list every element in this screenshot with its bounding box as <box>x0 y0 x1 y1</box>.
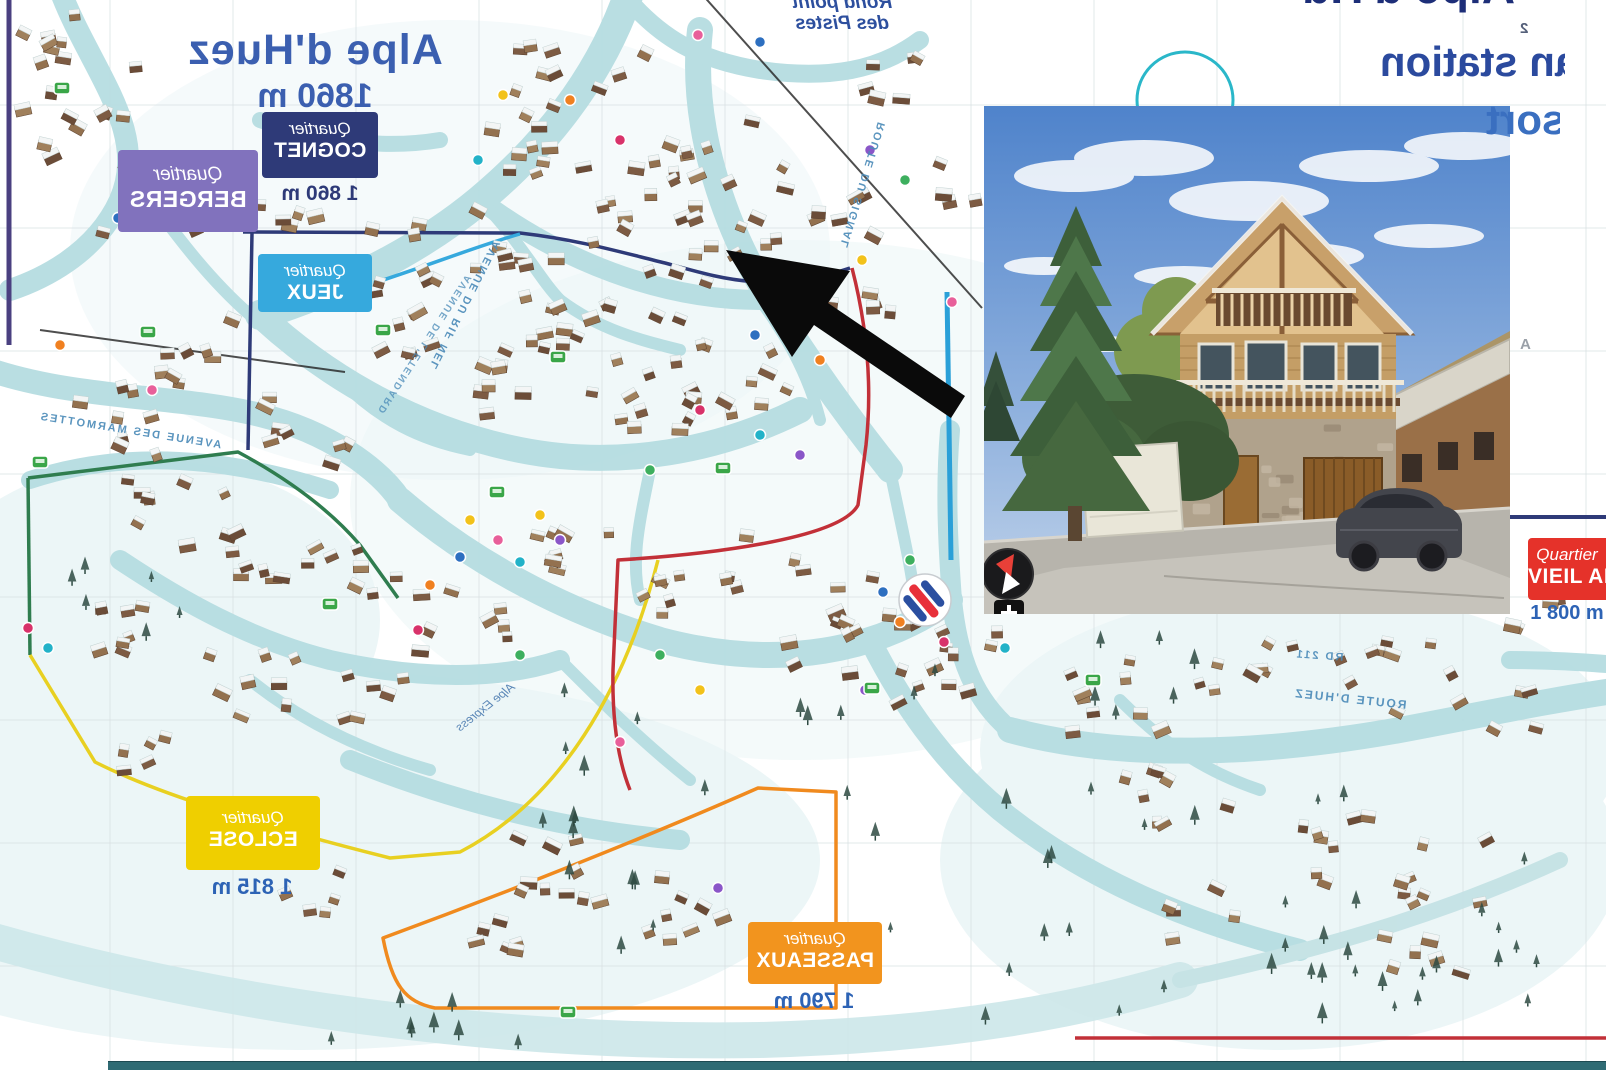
sector-label-2: 2 <box>1520 20 1528 37</box>
quartier-label-eclose: Quartier ECLOSE <box>186 796 320 870</box>
sector-label-a: A <box>1520 336 1531 353</box>
altitude-cognet: 1 860 m <box>268 182 372 206</box>
corner-title-line2: Plan station <box>1378 38 1565 94</box>
map-bottom-border <box>108 1061 1606 1070</box>
rond-point-label: Rond point des Pistes <box>742 0 942 34</box>
street-view-compass-icon[interactable] <box>984 549 1033 599</box>
street-view-photo-inset <box>984 106 1510 614</box>
resort-map-page: Alpe d'Huez 1860 m Alpe d'Huez Plan stat… <box>0 0 1606 1070</box>
quartier-label-bergers: Quartier BERGERS <box>118 150 258 232</box>
altitude-passeaux: 1 790 m <box>754 988 874 1014</box>
quartier-label-passeaux: Quartier PASSEAUX <box>748 922 882 984</box>
zoom-in-button[interactable] <box>994 600 1024 614</box>
ski-school-logo <box>899 574 951 626</box>
map-title: Alpe d'Huez 1860 m <box>150 26 480 116</box>
corner-title-line1: Alpe d'Huez <box>1300 0 1515 15</box>
map-title-name: Alpe d'Huez <box>150 26 480 75</box>
altitude-eclose: 1 815 m <box>192 874 312 900</box>
corner-title-line3: resort <box>1468 96 1560 148</box>
map-title-altitude: 1860 m <box>150 77 480 116</box>
altitude-vieil-alpe: 1 800 m <box>1528 602 1606 625</box>
quartier-label-vieil-alpe: Quartier VIEIL ALPE <box>1528 538 1606 600</box>
quartier-label-jeux: Quartier JEUX <box>258 254 372 312</box>
quartier-label-cognet: Quartier COGNET <box>262 112 378 178</box>
